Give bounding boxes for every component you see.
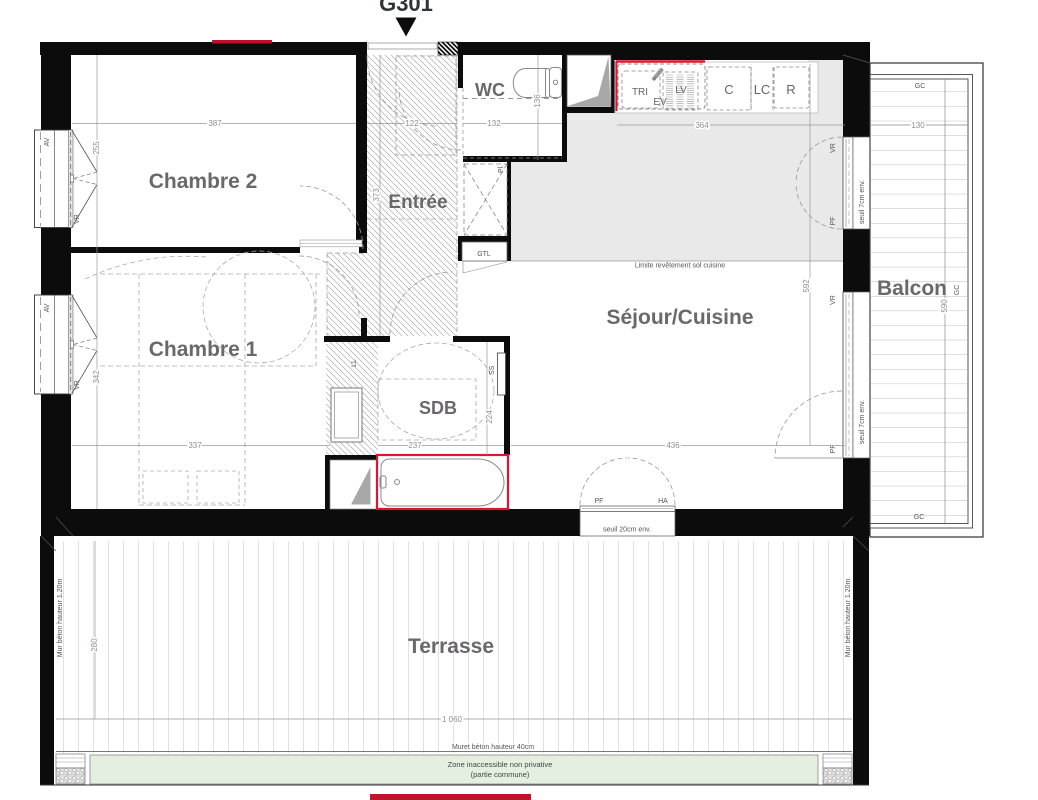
svg-text:C: C [724,82,733,97]
svg-text:Entrée: Entrée [388,192,447,213]
svg-text:590: 590 [940,299,949,313]
svg-text:GTL: GTL [477,251,491,258]
svg-text:LL: LL [351,359,358,367]
svg-text:PF: PF [830,445,837,454]
svg-text:Pl.: Pl. [498,165,505,173]
svg-text:337: 337 [188,441,202,450]
svg-text:R: R [786,82,795,97]
svg-text:Terrasse: Terrasse [408,635,494,658]
svg-text:224: 224 [485,410,494,424]
svg-text:Balcon: Balcon [877,277,947,300]
svg-text:WC: WC [475,80,505,100]
svg-text:122: 122 [405,119,419,128]
svg-text:Mur béton hauteur 1.20m: Mur béton hauteur 1.20m [57,579,64,658]
svg-text:136: 136 [533,94,542,108]
svg-text:255: 255 [92,141,101,155]
svg-text:Chambre 1: Chambre 1 [149,338,258,361]
svg-text:387: 387 [208,119,222,128]
svg-text:1 060: 1 060 [442,715,463,724]
svg-text:GC: GC [915,83,926,90]
svg-text:VR: VR [74,214,81,224]
svg-text:VR: VR [830,143,837,153]
svg-text:AV: AV [44,303,51,312]
svg-text:SS: SS [489,365,496,375]
svg-text:seuil 7cm env.: seuil 7cm env. [859,180,866,224]
svg-text:G301: G301 [379,0,433,16]
svg-text:Séjour/Cuisine: Séjour/Cuisine [606,306,753,329]
svg-text:132: 132 [487,119,501,128]
svg-text:Zone inaccessible non privativ: Zone inaccessible non privative [448,760,553,769]
svg-text:GC: GC [914,514,925,521]
svg-text:LV: LV [675,85,687,96]
svg-text:seuil 20cm env.: seuil 20cm env. [603,527,651,534]
svg-text:(partie commune): (partie commune) [471,770,530,779]
svg-text:Muret béton hauteur 40cm: Muret béton hauteur 40cm [452,744,534,751]
svg-text:130: 130 [911,121,925,130]
svg-text:SDB: SDB [419,398,457,418]
svg-text:EV: EV [653,97,667,108]
svg-text:Mur béton hauteur 1.20m: Mur béton hauteur 1.20m [845,579,852,658]
svg-text:364: 364 [695,121,709,130]
svg-text:AV: AV [44,137,51,146]
svg-text:Chambre 2: Chambre 2 [149,170,258,193]
svg-text:HA: HA [658,498,668,505]
svg-text:Limite revêtement sol cuisine: Limite revêtement sol cuisine [635,263,725,270]
svg-text:seuil 7cm env.: seuil 7cm env. [859,400,866,444]
svg-text:VR: VR [830,295,837,305]
svg-text:373: 373 [372,188,381,202]
svg-text:LC: LC [754,82,771,97]
svg-text:592: 592 [802,279,811,293]
svg-text:VR: VR [74,380,81,390]
svg-text:TRI: TRI [632,87,648,98]
svg-text:280: 280 [90,638,99,652]
svg-text:237: 237 [408,441,422,450]
svg-text:GC: GC [954,285,961,296]
svg-text:PF: PF [830,217,837,226]
svg-text:436: 436 [666,441,680,450]
svg-text:342: 342 [92,370,101,384]
svg-text:PF: PF [595,498,604,505]
